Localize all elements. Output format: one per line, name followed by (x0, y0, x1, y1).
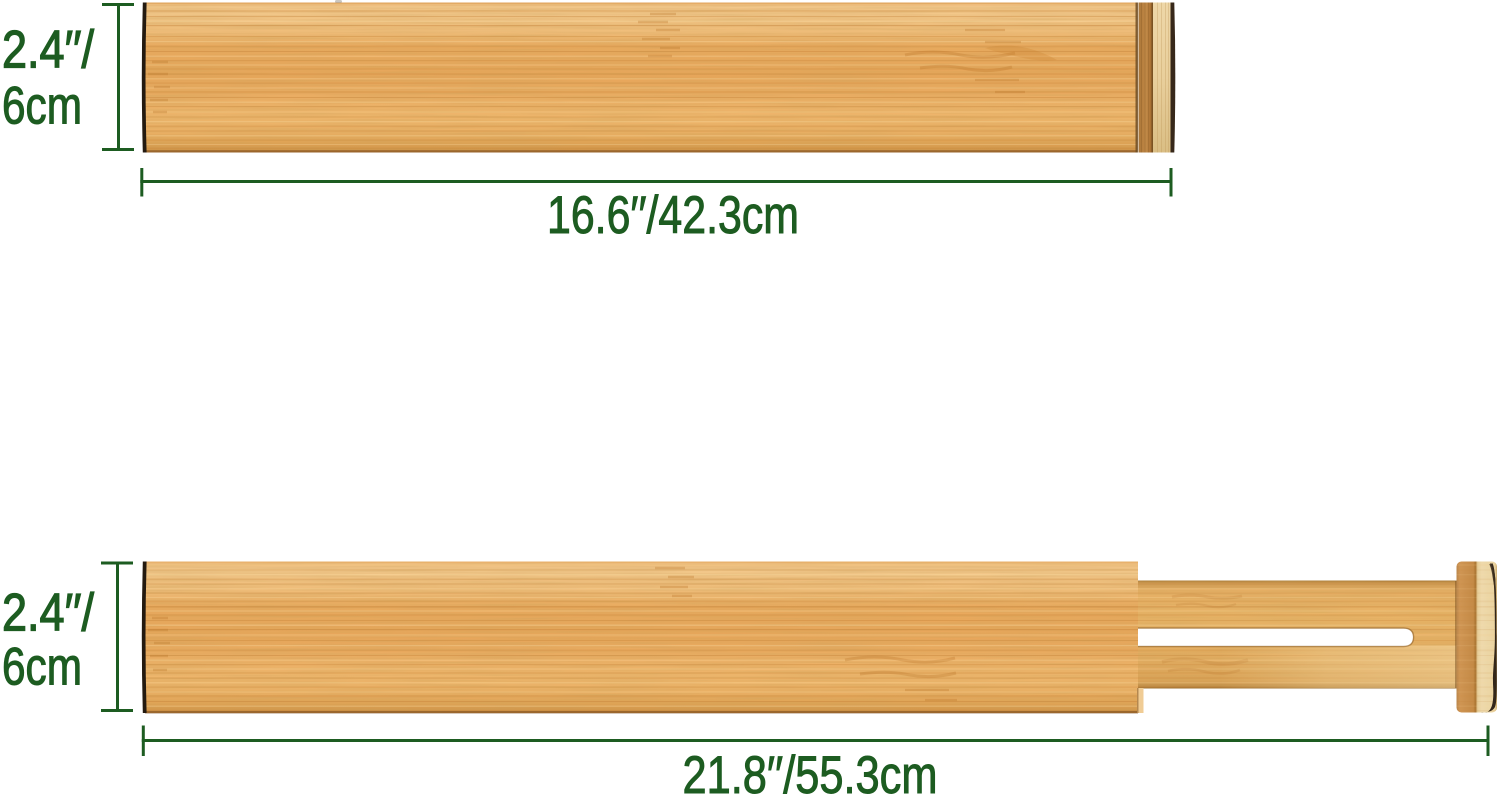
svg-text:16.6′′/42.3cm: 16.6′′/42.3cm (547, 186, 799, 245)
svg-text:2.4′′/: 2.4′′/ (2, 584, 94, 643)
svg-text:6cm: 6cm (2, 638, 82, 697)
svg-text:6cm: 6cm (2, 77, 82, 136)
svg-text:21.8′′/55.3cm: 21.8′′/55.3cm (683, 746, 938, 804)
svg-text:2.4′′/: 2.4′′/ (2, 21, 94, 80)
